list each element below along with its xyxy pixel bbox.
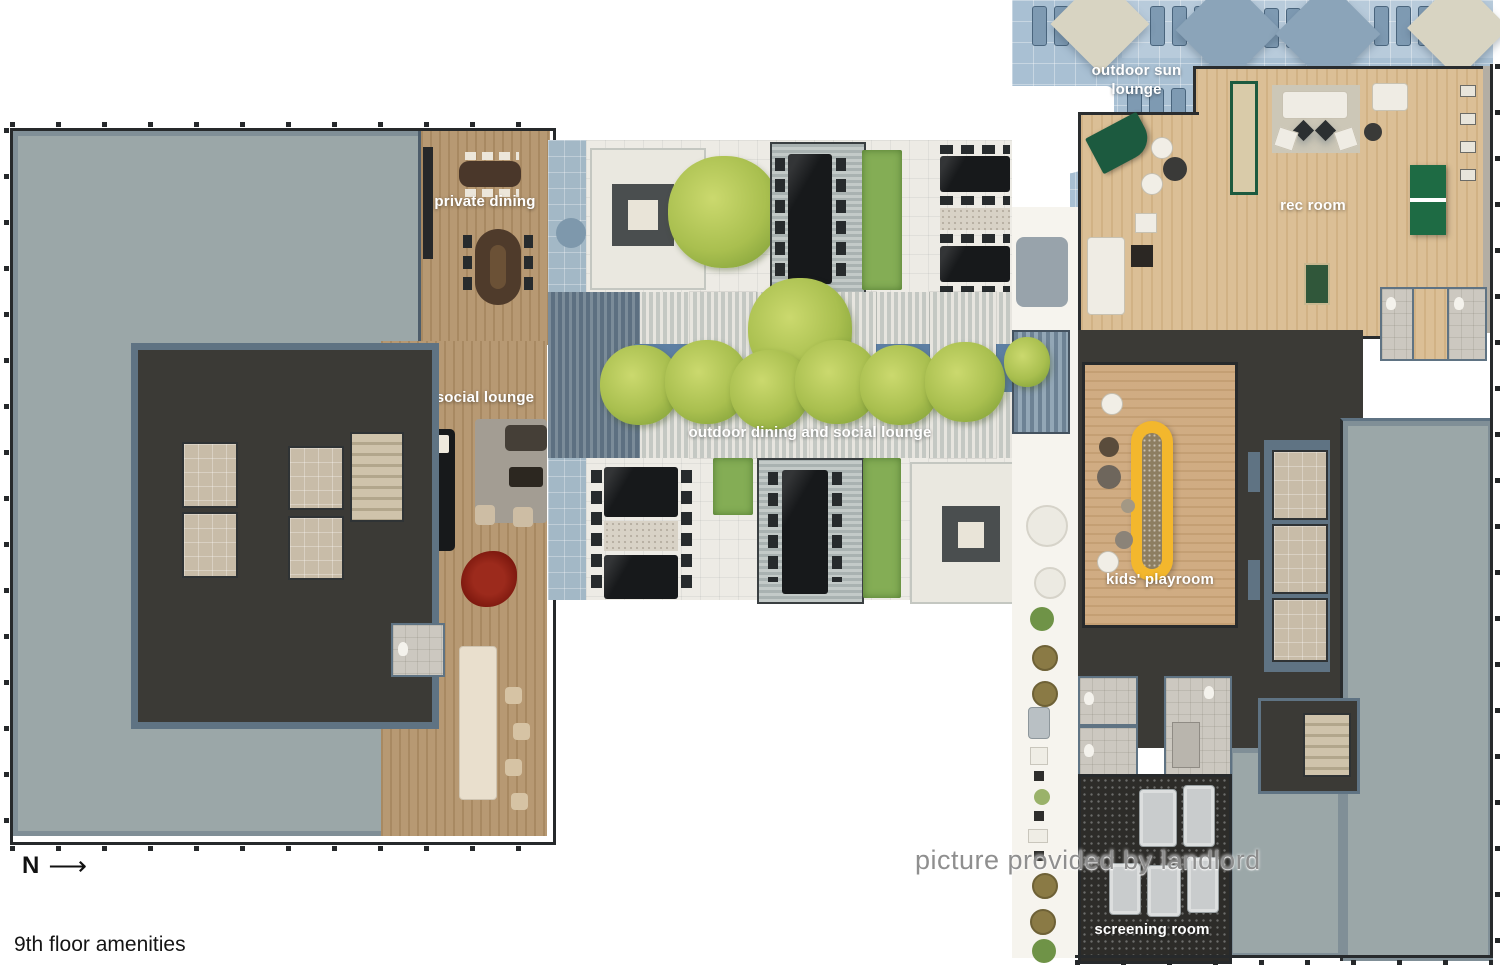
room-label-private-dining: private dining	[425, 193, 545, 212]
left-building: private dining social lounge	[10, 128, 556, 845]
screening-sofa	[1183, 785, 1215, 847]
stairs	[350, 432, 404, 522]
shrub	[1034, 789, 1050, 805]
coffee-table	[1131, 245, 1153, 267]
courtyard: outdoor dining and social lounge	[548, 140, 1012, 600]
kids-playroom: kids' playroom	[1082, 362, 1238, 628]
table-centerpiece	[490, 245, 506, 289]
north-letter: N	[22, 852, 39, 880]
armchair	[1135, 213, 1157, 233]
paving-circle	[1026, 505, 1068, 547]
play-structure	[1131, 421, 1173, 581]
sun-lounger	[1150, 6, 1165, 46]
cafe-table	[1163, 157, 1187, 181]
dining-table	[940, 246, 1010, 282]
dining-chairs	[832, 472, 842, 582]
floor-plan: private dining social lounge	[0, 0, 1500, 966]
tree	[925, 342, 1005, 422]
fire-pit	[612, 184, 674, 246]
shuffleboard-table	[1230, 81, 1258, 195]
cafe-table	[1141, 173, 1163, 195]
tree	[1004, 337, 1050, 387]
stairs	[1303, 713, 1351, 777]
bench	[1028, 829, 1048, 843]
side-table	[1364, 123, 1382, 141]
dining-chairs	[940, 196, 1010, 205]
sofa	[1282, 91, 1348, 119]
cafe-table	[1032, 645, 1058, 671]
lounge-chair	[1028, 707, 1050, 739]
elevator-cab	[1272, 524, 1328, 594]
stairwell	[1258, 698, 1360, 794]
side-table	[1030, 747, 1048, 765]
survey-ticks	[1495, 64, 1500, 958]
cafe-table	[1032, 681, 1058, 707]
elevator-cab	[182, 512, 238, 578]
dining-table	[604, 555, 678, 599]
dining-chairs	[940, 145, 1010, 154]
room-label-rec-room: rec room	[1253, 197, 1373, 216]
dining-chairs	[836, 158, 846, 280]
toilet	[1386, 297, 1396, 310]
room-label-screening-room: screening room	[1092, 921, 1212, 940]
bathroom	[1380, 287, 1416, 361]
screening-sofa	[1139, 789, 1177, 847]
toilet	[398, 642, 408, 656]
cafe-table	[1151, 137, 1173, 159]
elevator-cab	[1272, 598, 1328, 662]
stone-console	[604, 521, 678, 551]
bean-bag	[1097, 465, 1121, 489]
bathroom	[1078, 676, 1138, 726]
elevator-cab	[288, 446, 344, 510]
cafe-table	[1030, 909, 1056, 935]
shrub	[1032, 939, 1056, 963]
dining-chairs	[463, 235, 472, 297]
north-indicator: N ⟶	[22, 852, 87, 880]
toilet	[1084, 744, 1094, 757]
stool	[505, 759, 522, 776]
oval-dining-table	[475, 229, 521, 305]
hedge	[862, 150, 902, 290]
armchair	[475, 505, 495, 525]
sun-lounger	[1374, 6, 1389, 46]
planter	[556, 218, 586, 248]
bathroom	[1447, 287, 1487, 361]
piano	[1085, 112, 1155, 175]
dining-table	[459, 161, 521, 187]
toilet	[1204, 686, 1214, 699]
bean-bag	[1099, 437, 1119, 457]
planter-box	[1034, 771, 1044, 781]
foosball-table	[1304, 263, 1330, 305]
dining-deck	[757, 458, 864, 604]
wall-chair	[1460, 141, 1476, 153]
bathroom	[391, 623, 445, 677]
tree	[668, 156, 780, 268]
room-label-social-lounge: social lounge	[425, 389, 545, 408]
fire-pit	[942, 506, 1000, 562]
ping-pong-table	[1410, 165, 1446, 235]
survey-ticks	[10, 846, 556, 851]
north-arrow-icon: ⟶	[48, 853, 87, 880]
wall-chair	[1460, 169, 1476, 181]
sauna-room	[1412, 287, 1451, 361]
survey-ticks	[4, 128, 9, 845]
paving-circle	[1034, 567, 1066, 599]
hedge	[713, 458, 753, 515]
elevator-cab	[182, 442, 238, 508]
wall	[1248, 560, 1260, 600]
sofa	[505, 425, 547, 451]
elevator-cab	[288, 516, 344, 580]
floor-caption: 9th floor amenities	[14, 933, 186, 957]
bean-bag	[1121, 499, 1135, 513]
wall	[1248, 452, 1260, 492]
toilet	[1084, 692, 1094, 705]
planter-wall	[1016, 237, 1068, 307]
room-label-outdoor-dining: outdoor dining and social lounge	[640, 424, 980, 443]
kitchen-island	[459, 646, 497, 800]
dining-chairs	[768, 472, 778, 582]
terrace-cutout	[1012, 160, 1070, 207]
dining-table	[604, 467, 678, 517]
roof-terrace	[1340, 418, 1493, 961]
fire-pit-gravel	[958, 522, 984, 548]
stool	[511, 793, 528, 810]
room-label-kids-playroom: kids' playroom	[1105, 571, 1215, 590]
room-label-outdoor-sun-lounge: outdoor sun lounge	[1074, 62, 1199, 100]
shower	[1172, 722, 1200, 768]
stool	[505, 687, 522, 704]
wall-chair	[1460, 85, 1476, 97]
bathroom	[1078, 726, 1138, 778]
coffee-table	[509, 467, 543, 487]
dining-chairs	[524, 235, 533, 297]
hedge	[863, 458, 901, 598]
sun-lounger	[1032, 6, 1047, 46]
armchair	[513, 507, 533, 527]
long-dining-table	[788, 154, 832, 284]
stone-console	[940, 208, 1010, 230]
kids-table	[1101, 393, 1123, 415]
elevator-cab	[1272, 450, 1328, 520]
dining-chairs	[591, 470, 602, 588]
dining-chairs	[775, 158, 785, 280]
toilet	[1454, 297, 1464, 310]
bathroom	[1164, 676, 1232, 778]
building-outline	[1075, 955, 1493, 958]
dining-deck	[770, 142, 866, 296]
dining-table	[940, 156, 1010, 192]
kids-table	[1097, 551, 1119, 573]
dining-chairs	[681, 470, 692, 588]
stool	[513, 723, 530, 740]
rec-room-annex	[1078, 112, 1199, 339]
wall-chair	[1460, 113, 1476, 125]
survey-ticks	[1075, 960, 1493, 965]
cafe-table	[1032, 873, 1058, 899]
sofa	[1087, 237, 1125, 315]
building-outline	[1490, 64, 1493, 958]
planter-box	[1034, 811, 1044, 821]
shrub	[1030, 607, 1054, 631]
watermark: picture provided by landlord	[915, 845, 1261, 876]
fire-pit-gravel	[628, 200, 658, 230]
dining-chairs	[465, 152, 519, 160]
dining-chairs	[940, 234, 1010, 243]
armchair	[1372, 83, 1408, 111]
long-dining-table	[782, 470, 828, 594]
bean-bag	[1115, 531, 1133, 549]
play-structure-track	[1142, 433, 1162, 569]
survey-ticks	[10, 122, 556, 127]
